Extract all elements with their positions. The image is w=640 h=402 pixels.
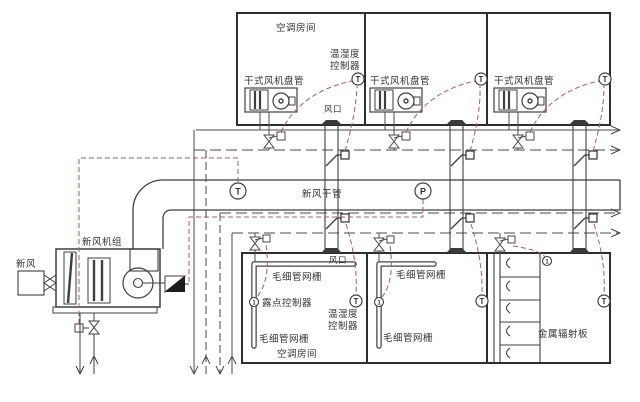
coil-icon	[88, 258, 110, 303]
diffuser-icon	[321, 120, 342, 125]
panel-hook-icon	[507, 326, 511, 336]
motor-valve-icon	[374, 236, 394, 251]
flex-joint-icon	[165, 276, 189, 292]
svg-text:T: T	[602, 297, 607, 306]
motor-valve-icon	[264, 132, 285, 148]
control-wire	[594, 224, 604, 294]
svg-text:P: P	[420, 187, 426, 197]
svg-text:T: T	[479, 75, 484, 84]
control-wire	[471, 224, 482, 294]
diffuser-icon	[446, 120, 467, 125]
fan-icon	[123, 249, 165, 298]
svg-text:T: T	[480, 297, 485, 306]
branch-ducts	[325, 125, 586, 253]
fresh-air-unit	[18, 249, 189, 374]
svg-text:T: T	[603, 75, 608, 84]
panel-hook-icon	[507, 281, 511, 291]
ahu-inlet-duct	[18, 271, 44, 295]
svg-text:T: T	[356, 75, 361, 84]
water-risers	[190, 130, 236, 374]
diffuser-icon	[569, 120, 590, 125]
label-humidity-controller: 温湿度	[328, 308, 358, 320]
hvac-schematic: T P T T T T T T 1 1 1 空调房间 温湿度 控制器 干式风机盘…	[0, 0, 640, 402]
label-humidity-controller: 温湿度	[330, 48, 360, 60]
label-fresh-air: 新风	[16, 258, 36, 270]
fan-coil-unit-icon	[494, 88, 546, 112]
fcu-piping	[260, 112, 534, 150]
duct-pressure-sensor: P	[415, 183, 431, 199]
room-thermostat: T	[476, 295, 488, 307]
label-main-duct: 新风干管	[302, 188, 342, 200]
dew-point-sensor: 1	[375, 298, 384, 307]
water-mains	[194, 126, 620, 237]
control-wire	[470, 86, 480, 151]
motor-valve-icon	[513, 132, 534, 148]
fan-coil-unit-icon	[370, 88, 422, 112]
dew-point-sensor: 1	[250, 298, 259, 307]
room-thermostat: T	[352, 73, 364, 85]
label-capillary-mat: 毛细管网栅	[259, 333, 309, 345]
diffuser-icon	[569, 248, 590, 253]
label-top-room: 空调房间	[276, 22, 316, 34]
motor-valve-icon	[389, 132, 410, 148]
diffuser-icon	[321, 248, 342, 253]
dew-point-sensor: 1	[543, 257, 552, 266]
panel-hook-icon	[507, 303, 511, 313]
control-wire	[345, 86, 357, 151]
panel-hook-icon	[507, 348, 511, 358]
label-air-outlet: 风口	[324, 104, 342, 114]
metal-radiant-panel	[494, 253, 540, 362]
bottom-room-valves	[250, 233, 515, 262]
label-dew-point-controller: 露点控制器	[262, 297, 312, 309]
schematic-canvas: T P T T T T T T 1 1 1 空调房间 温湿度 控制器 干式风机盘…	[0, 0, 640, 402]
svg-text:T: T	[354, 297, 359, 306]
motor-valve-icon	[495, 236, 515, 251]
label-bottom-room: 空调房间	[277, 348, 317, 360]
room-thermostat: T	[599, 73, 611, 85]
label-humidity-controller: 控制器	[330, 60, 360, 72]
motor-valve-icon	[250, 235, 270, 250]
label-dry-fcu: 干式风机盘管	[244, 75, 304, 87]
label-dry-fcu: 干式风机盘管	[370, 75, 430, 87]
labels: 空调房间 温湿度 控制器 干式风机盘管 干式风机盘管 干式风机盘管 风口 新风干…	[16, 22, 588, 360]
fan-coil-units	[245, 88, 546, 112]
control-wire	[346, 224, 356, 294]
ahu-base	[53, 307, 157, 313]
label-humidity-controller: 控制器	[328, 320, 358, 332]
label-capillary-mat: 毛细管网栅	[396, 269, 446, 281]
fan-coil-unit-icon	[245, 88, 297, 112]
label-ahu: 新风机组	[82, 236, 122, 248]
label-capillary-mat: 毛细管网栅	[272, 271, 322, 283]
duct-temp-sensor: T	[230, 183, 246, 199]
room-thermostat: T	[350, 295, 362, 307]
label-air-outlet: 风口	[329, 255, 347, 265]
diffuser-icon	[446, 248, 467, 253]
filter-icon	[64, 252, 76, 304]
flex-connector-icon	[44, 275, 56, 291]
label-radiant-panel: 金属辐射板	[538, 328, 588, 340]
panel-hook-icon	[507, 258, 511, 268]
room-thermostat: T	[598, 295, 610, 307]
label-capillary-mat: 毛细管网栅	[383, 332, 433, 344]
control-wire	[593, 86, 604, 151]
svg-text:T: T	[235, 187, 241, 197]
room-thermostat: T	[475, 73, 487, 85]
control-wiring	[79, 81, 604, 324]
label-dry-fcu: 干式风机盘管	[494, 75, 554, 87]
